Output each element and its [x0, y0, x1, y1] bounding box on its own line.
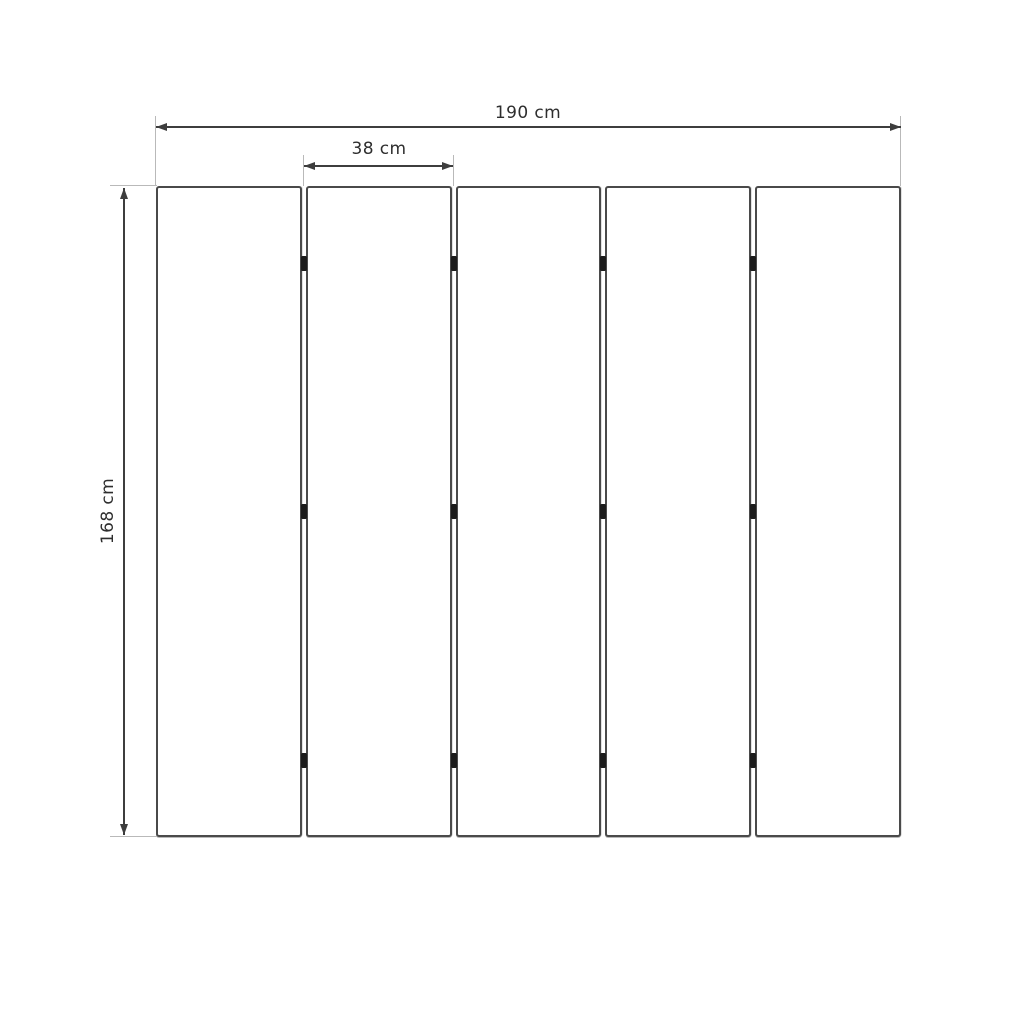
extension-line-height-bottom: [110, 836, 157, 837]
arrowhead-height-bottom: [120, 824, 128, 835]
arrowhead-total-width-left: [156, 123, 167, 131]
folding-screen-diagram: 190 cm 38 cm 168 cm: [0, 0, 1024, 1024]
panel-width-label: 38 cm: [352, 139, 407, 159]
arrowhead-height-top: [120, 188, 128, 199]
hinge-gap1-row3: [301, 753, 307, 768]
screen-panel-2: [306, 186, 452, 837]
hinge-gap1-row2: [301, 504, 307, 519]
hinge-gap4-row2: [750, 504, 756, 519]
hinge-gap2-row3: [451, 753, 457, 768]
hinge-gap4-row3: [750, 753, 756, 768]
total-width-label: 190 cm: [495, 103, 561, 123]
hinge-gap2-row1: [451, 256, 457, 271]
arrowhead-total-width-right: [890, 123, 901, 131]
extension-line-height-top: [110, 185, 157, 186]
arrowhead-panel-width-right: [442, 162, 453, 170]
hinge-gap4-row1: [750, 256, 756, 271]
hinge-gap3-row1: [600, 256, 606, 271]
hinge-gap3-row3: [600, 753, 606, 768]
dimension-line-height: [123, 188, 125, 835]
screen-panel-1: [156, 186, 302, 837]
hinge-gap2-row2: [451, 504, 457, 519]
dimension-line-panel-width: [304, 165, 453, 167]
extension-line-panel-right: [453, 155, 454, 186]
screen-panel-5: [755, 186, 901, 837]
hinge-gap1-row1: [301, 256, 307, 271]
screen-panel-3: [456, 186, 602, 837]
dimension-line-total-width: [156, 126, 901, 128]
extension-line-panel-left: [303, 155, 304, 186]
screen-panel-4: [605, 186, 751, 837]
arrowhead-panel-width-left: [304, 162, 315, 170]
hinge-gap3-row2: [600, 504, 606, 519]
height-label: 168 cm: [98, 478, 118, 544]
